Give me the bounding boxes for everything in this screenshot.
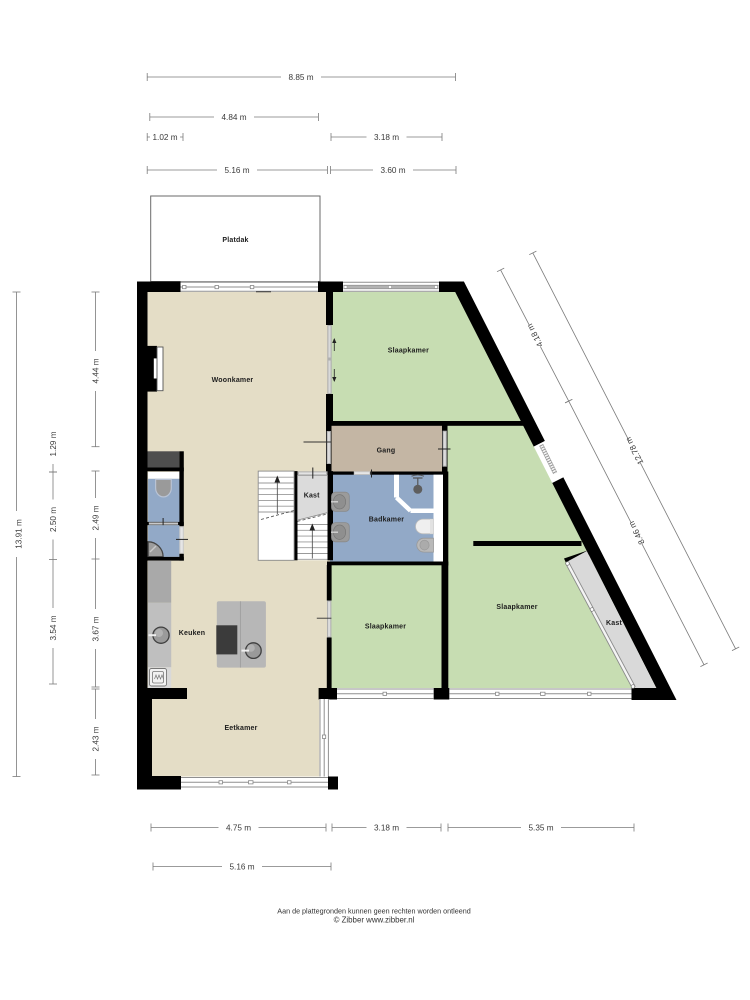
svg-text:Slaapkamer: Slaapkamer [365, 624, 406, 631]
svg-text:3.60 m: 3.60 m [380, 166, 405, 175]
svg-text:Woonkamer: Woonkamer [212, 377, 254, 384]
svg-text:1.02 m: 1.02 m [152, 133, 177, 142]
svg-text:Kast: Kast [606, 620, 622, 627]
svg-text:3.18 m: 3.18 m [374, 824, 399, 833]
svg-text:Platdak: Platdak [222, 237, 248, 244]
svg-text:Badkamer: Badkamer [369, 517, 405, 524]
svg-text:1.29 m: 1.29 m [49, 431, 58, 456]
svg-text:5.16 m: 5.16 m [229, 863, 254, 872]
svg-text:2.43 m: 2.43 m [92, 726, 101, 751]
svg-text:Slaapkamer: Slaapkamer [388, 347, 429, 354]
svg-text:4.75 m: 4.75 m [226, 824, 251, 833]
svg-text:3.54 m: 3.54 m [49, 615, 58, 640]
svg-text:4.84 m: 4.84 m [221, 113, 246, 122]
svg-text:2.50 m: 2.50 m [49, 507, 58, 532]
svg-text:Slaapkamer: Slaapkamer [496, 604, 537, 611]
svg-text:13.91 m: 13.91 m [15, 519, 24, 549]
svg-text:5.35 m: 5.35 m [528, 824, 553, 833]
svg-text:Eetkamer: Eetkamer [224, 725, 257, 732]
svg-text:5.16 m: 5.16 m [224, 166, 249, 175]
svg-text:Aan de plattegronden kunnen ge: Aan de plattegronden kunnen geen rechten… [277, 907, 470, 916]
svg-text:2.49 m: 2.49 m [92, 505, 101, 530]
svg-text:3.18 m: 3.18 m [374, 133, 399, 142]
svg-text:4.44 m: 4.44 m [92, 358, 101, 383]
svg-text:8.85 m: 8.85 m [288, 73, 313, 82]
svg-text:Gang: Gang [377, 448, 396, 455]
svg-text:© Zibber www.zibber.nl: © Zibber www.zibber.nl [334, 916, 415, 925]
svg-text:3.67 m: 3.67 m [92, 616, 101, 641]
svg-text:Kast: Kast [304, 493, 320, 500]
svg-text:Keuken: Keuken [179, 630, 206, 637]
